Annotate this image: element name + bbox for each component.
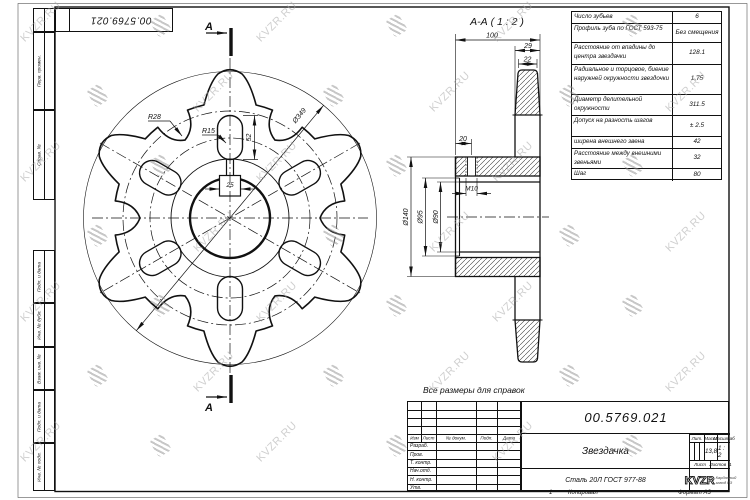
param-row: Шаг80 bbox=[572, 169, 721, 181]
signature-row-label: Нач.отд. bbox=[410, 468, 431, 474]
copied-by-note: Копировал bbox=[568, 490, 598, 496]
company-cell: KVZR Карданный завод РЗ bbox=[689, 468, 730, 492]
part-name: Звездачка bbox=[582, 446, 629, 457]
reference-note: Все размеры для справок bbox=[423, 385, 526, 395]
company-tagline: Карданный завод РЗ bbox=[716, 476, 737, 486]
margin-stamp-box: Подп. и дата bbox=[33, 250, 55, 303]
lightening-slot bbox=[135, 156, 186, 200]
param-label: Шаг bbox=[572, 169, 673, 181]
scale-value-cell: 1 : 2 bbox=[717, 442, 730, 460]
sheet-label: Лист bbox=[694, 462, 706, 467]
sheet-cell: Лист bbox=[689, 460, 710, 468]
scale-value: 1 : 2 bbox=[718, 445, 730, 459]
company-tagline-2: завод РЗ bbox=[716, 481, 737, 486]
sprocket-generated-geometry bbox=[84, 58, 377, 380]
title-block: ИзмЛист№ докум.Подп.ДатаРазраб.Пров.Т. к… bbox=[407, 401, 729, 491]
material-cell: Сталь 20Л ГОСТ 977-88 bbox=[521, 468, 689, 492]
format-note: Формат А3 bbox=[678, 490, 711, 496]
sheets-cell: Листов 1 bbox=[710, 460, 730, 468]
param-value: 6 bbox=[673, 12, 721, 23]
part-name-cell: Звездачка bbox=[521, 434, 689, 468]
param-row: Радиальное и торцовое, биение наружней о… bbox=[572, 65, 721, 95]
param-label: Расстояние между внешними звеньями bbox=[572, 149, 673, 168]
param-value: 311.5 bbox=[673, 95, 721, 115]
sheets-label: Листов bbox=[709, 462, 726, 467]
param-label: ширена внешнего звена bbox=[572, 137, 673, 148]
dim-20-label: 20 bbox=[458, 136, 467, 143]
mass-value-cell: 13,8 bbox=[704, 442, 717, 460]
margin-stamp-box: Подп. и дата bbox=[33, 390, 55, 443]
rev-header: Лист bbox=[423, 436, 435, 441]
scale-header: Масштаб bbox=[717, 434, 730, 442]
lit-header: Лит. bbox=[689, 434, 704, 442]
rev-header: № докум. bbox=[446, 436, 466, 441]
signature-row-label: Т. контр. bbox=[410, 460, 432, 466]
dim-90-label: Ø90 bbox=[433, 210, 440, 224]
corner-stamp-number: 00.5769.021 bbox=[90, 15, 151, 26]
drawing-sheet: A A Ø349 R28 R15 52 25 bbox=[0, 0, 750, 500]
margin-stamp-label: Инв. № подл. bbox=[37, 452, 42, 482]
copy-column: 1 bbox=[549, 490, 552, 496]
param-row: Допуск на разность шагов± 2.5 bbox=[572, 116, 721, 137]
grid-line bbox=[421, 402, 422, 442]
param-row: Число зубьев6 bbox=[572, 12, 721, 24]
dim-22-label: 22 bbox=[523, 57, 532, 64]
dim-140-label: Ø140 bbox=[403, 208, 410, 226]
section-view-a-a: А-А ( 1 : 2 ) bbox=[403, 16, 549, 362]
param-label: Профиль зуба по ГОСТ 593-75 bbox=[572, 24, 673, 42]
corner-stamp: 00.5769.021 bbox=[55, 8, 173, 32]
rev-header: Подп. bbox=[480, 436, 492, 441]
margin-stamp-box: Инв. № подл. bbox=[33, 443, 55, 491]
scale-header-label: Масштаб bbox=[713, 436, 734, 441]
signature-row-label: Утв. bbox=[410, 485, 421, 491]
signature-row-label: Разраб. bbox=[410, 443, 428, 449]
param-label: Радиальное и торцовое, биение наружней о… bbox=[572, 65, 673, 94]
section-bottom-tooth bbox=[515, 320, 540, 362]
grid-line bbox=[408, 410, 521, 411]
lightening-slot bbox=[274, 156, 325, 200]
dim-m10-label: М10 bbox=[465, 186, 478, 193]
slot-length-label: 52 bbox=[246, 134, 253, 142]
grid-line bbox=[476, 402, 477, 492]
sprocket-front-view: A A Ø349 R28 R15 52 25 bbox=[84, 21, 377, 414]
material: Сталь 20Л ГОСТ 977-88 bbox=[565, 477, 646, 484]
doc-number-cell: 00.5769.021 bbox=[521, 402, 730, 434]
param-value: 80 bbox=[673, 169, 721, 181]
dim-95-label: Ø95 bbox=[418, 210, 425, 224]
section-title: А-А ( 1 : 2 ) bbox=[469, 16, 524, 28]
param-row: Профиль зуба по ГОСТ 593-75Без смещения bbox=[572, 24, 721, 43]
param-row: Расстояние между внешними звеньями32 bbox=[572, 149, 721, 169]
param-value: 1,75 bbox=[673, 65, 721, 94]
signature-row-label: Н. контр. bbox=[410, 477, 433, 483]
param-value: 128.1 bbox=[673, 43, 721, 64]
param-value: Без смещения bbox=[673, 24, 721, 42]
keyway-width-label: 25 bbox=[225, 182, 234, 189]
rev-header: Изм bbox=[410, 436, 419, 441]
grid-line bbox=[497, 402, 498, 492]
param-row: Расстояние от впадины до центра звездачк… bbox=[572, 43, 721, 65]
margin-stamp-box: Инв. № дубл. bbox=[33, 303, 55, 347]
mass-value: 13,8 bbox=[705, 448, 717, 455]
grid-line bbox=[408, 418, 521, 419]
margin-stamp-box: Взам. инв. № bbox=[33, 347, 55, 390]
margin-stamp-label: Взам. инв. № bbox=[37, 354, 42, 384]
margin-stamp-label: Перв. примен. bbox=[37, 55, 42, 87]
param-value: 32 bbox=[673, 149, 721, 168]
signature-row-label: Пров. bbox=[410, 452, 423, 458]
param-label: Расстояние от впадины до центра звездачк… bbox=[572, 43, 673, 64]
param-row: ширена внешнего звена42 bbox=[572, 137, 721, 149]
section-letter-bottom: A bbox=[204, 402, 213, 414]
scallop-radius-label: R28 bbox=[148, 114, 161, 121]
margin-stamp-label: Инв. № дубл. bbox=[37, 310, 42, 340]
dim-100-label: 100 bbox=[486, 33, 498, 40]
dim-29-label: 29 bbox=[523, 43, 532, 50]
section-top-tooth bbox=[515, 70, 540, 115]
margin-stamp-label: Справ. № bbox=[37, 144, 42, 166]
param-label: Число зубьев bbox=[572, 12, 673, 23]
margin-stamp-divider bbox=[34, 9, 45, 31]
sheets-value: 1 bbox=[729, 462, 732, 467]
grid-line bbox=[408, 426, 521, 427]
grid-line bbox=[408, 450, 521, 451]
section-rim-bottom bbox=[456, 258, 541, 277]
param-label: Диаметр делительной окружности bbox=[572, 95, 673, 115]
section-letter-top: A bbox=[204, 21, 213, 33]
param-row: Диаметр делительной окружности311.5 bbox=[572, 95, 721, 116]
margin-stamp-box: Перв. примен. bbox=[33, 32, 55, 110]
param-value: 42 bbox=[673, 137, 721, 148]
title-block-signature-grid: ИзмЛист№ докум.Подп.ДатаРазраб.Пров.Т. к… bbox=[408, 402, 521, 492]
param-value: ± 2.5 bbox=[673, 116, 721, 136]
slot-radius-label: R15 bbox=[202, 128, 215, 135]
sprocket-parameter-table: Число зубьев6Профиль зуба по ГОСТ 593-75… bbox=[571, 11, 722, 180]
grid-line bbox=[408, 434, 521, 435]
param-label: Допуск на разность шагов bbox=[572, 116, 673, 136]
margin-stamp-label: Подп. и дата bbox=[37, 261, 42, 291]
grid-line bbox=[408, 484, 521, 485]
rev-header: Дата bbox=[503, 436, 515, 441]
margin-stamp-box: Справ. № bbox=[33, 110, 55, 200]
corner-stamp-divider bbox=[69, 9, 70, 31]
outer-diameter-label: Ø349 bbox=[291, 107, 308, 126]
margin-stamp-box bbox=[33, 8, 55, 32]
grid-line bbox=[436, 402, 437, 492]
margin-stamp-label: Подп. и дата bbox=[37, 401, 42, 431]
doc-number: 00.5769.021 bbox=[584, 410, 667, 425]
company-logo-text: KVZR bbox=[685, 475, 715, 487]
lit-header-label: Лит. bbox=[692, 436, 703, 441]
